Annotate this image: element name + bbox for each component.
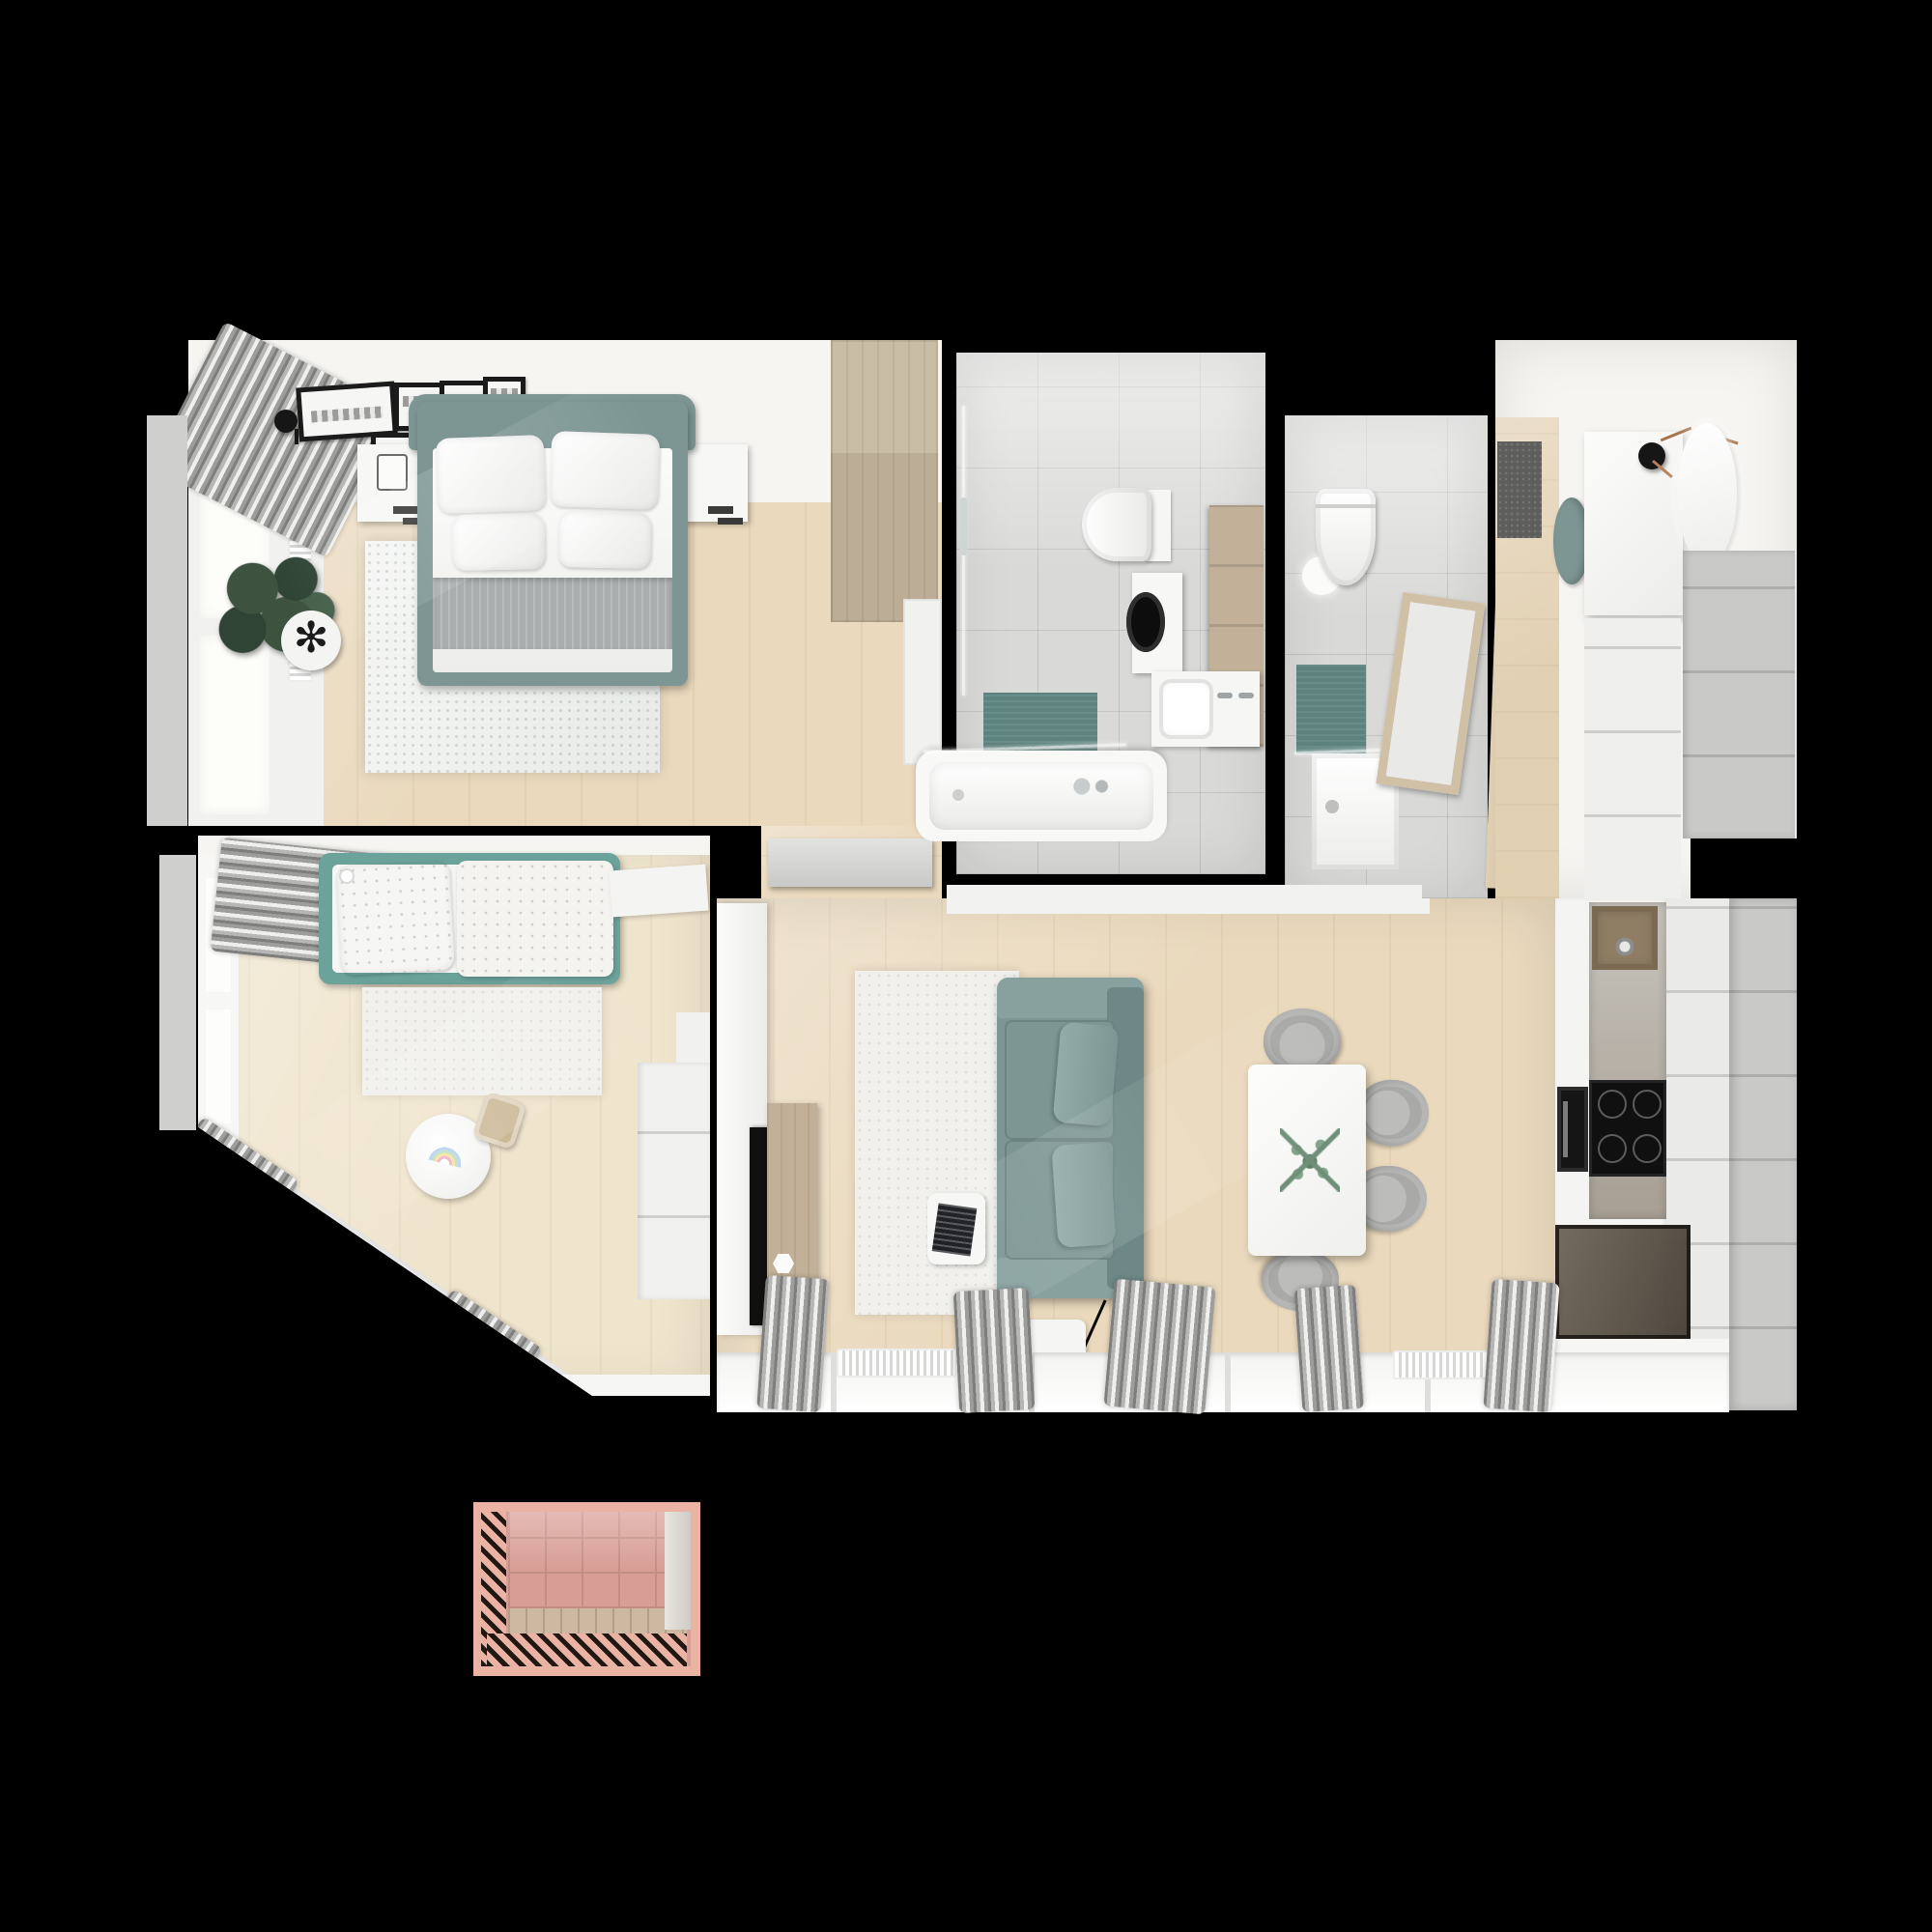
cooktop-burner [1598, 1134, 1627, 1163]
wall-gap [1690, 838, 1797, 898]
balcony-tiles [508, 1512, 687, 1608]
room-kids-bedroom [198, 836, 710, 1396]
bathtub-drain [952, 789, 964, 801]
room-shower-room [1285, 415, 1488, 898]
kids-duvet [457, 861, 613, 977]
shower-teal-panel [1296, 665, 1366, 753]
oven-handle [1563, 1101, 1568, 1157]
toilet-tank-line [1316, 504, 1376, 508]
living-north-wall [947, 885, 1422, 900]
bed-blanket [433, 578, 672, 649]
nightstand-handle [718, 518, 743, 525]
wall-sconce-arm [295, 429, 298, 444]
shower-drain [1325, 800, 1339, 813]
window-curtain [953, 1288, 1035, 1413]
built-in-oven [1557, 1087, 1588, 1172]
kids-window-pane [206, 1009, 231, 1123]
vanity-faucet [1238, 693, 1254, 698]
balcony [473, 1502, 700, 1676]
cooktop-burner [1598, 1090, 1627, 1119]
toilet-bowl [1316, 489, 1376, 585]
kids-desk [609, 865, 708, 918]
wall-mirror [1377, 592, 1486, 795]
nightstand-handle [708, 506, 733, 514]
hallway-sideboard [768, 838, 932, 887]
cooktop-burner [1633, 1134, 1662, 1163]
kids-exterior-sill [159, 855, 196, 1130]
phone-doodle [377, 454, 408, 491]
window-curtain [1103, 1279, 1215, 1415]
entry-doormat [1497, 441, 1542, 538]
window-curtain [1294, 1285, 1365, 1412]
shower-door-handle [960, 497, 967, 555]
hallway [761, 826, 942, 903]
sofa-pillow [1053, 1022, 1120, 1127]
floor-plan-canvas: ✻ [0, 0, 1932, 1932]
bed-pillow [452, 513, 546, 571]
bedroom-wardrobe-grain [831, 340, 938, 622]
room-bathroom-main [956, 353, 1265, 874]
bed-pillow [436, 435, 547, 514]
washing-machine-door [1126, 592, 1165, 652]
pendant-lamp [339, 868, 355, 884]
window-curtain [756, 1275, 829, 1412]
dining-chair [1357, 1080, 1429, 1146]
vanity-faucet [1217, 693, 1233, 698]
kids-rug [362, 987, 602, 1095]
room-master-bedroom: ✻ [188, 340, 942, 826]
entry-wardrobe-gray [1683, 551, 1795, 838]
living-radiator [837, 1349, 956, 1378]
room-entry-hall [1495, 340, 1797, 898]
kids-upper-panel [676, 1012, 710, 1063]
entry-console [1584, 432, 1683, 615]
round-mirror [1677, 423, 1737, 564]
nightstand-handle [393, 506, 418, 514]
window-curtain [1483, 1279, 1559, 1413]
sofa-pillow [1051, 1142, 1116, 1248]
laptop [932, 1203, 978, 1256]
toilet-bowl [1082, 488, 1151, 561]
balcony-plank-floor [508, 1608, 687, 1635]
living-top-wall [947, 898, 1430, 914]
hallway-closet [903, 599, 942, 765]
kids-bottom-sill [541, 1375, 710, 1396]
kitchen-faucet [1615, 937, 1634, 956]
room-kitchen [1555, 898, 1797, 1410]
bathtub-faucet [1068, 776, 1113, 797]
entry-wardrobe-white [1584, 618, 1681, 898]
eucalyptus-sprig [1280, 1128, 1340, 1192]
bed-pillow [550, 431, 661, 510]
bedroom-exterior-sill [147, 415, 187, 826]
plant-pot: ✻ [281, 611, 341, 670]
dining-chair [1264, 1009, 1341, 1072]
bed-pillow [558, 511, 652, 569]
vanity-basin [1159, 679, 1213, 739]
kitchen-tall-cabinets [1729, 898, 1797, 1410]
kids-wardrobe [638, 1063, 710, 1299]
balcony-side-wall [665, 1512, 691, 1630]
cooktop-burner [1633, 1090, 1662, 1119]
balcony-slats-bottom [487, 1634, 687, 1666]
south-window-mullion [1225, 1352, 1231, 1412]
smoked-glass-cabinet [1555, 1225, 1690, 1339]
